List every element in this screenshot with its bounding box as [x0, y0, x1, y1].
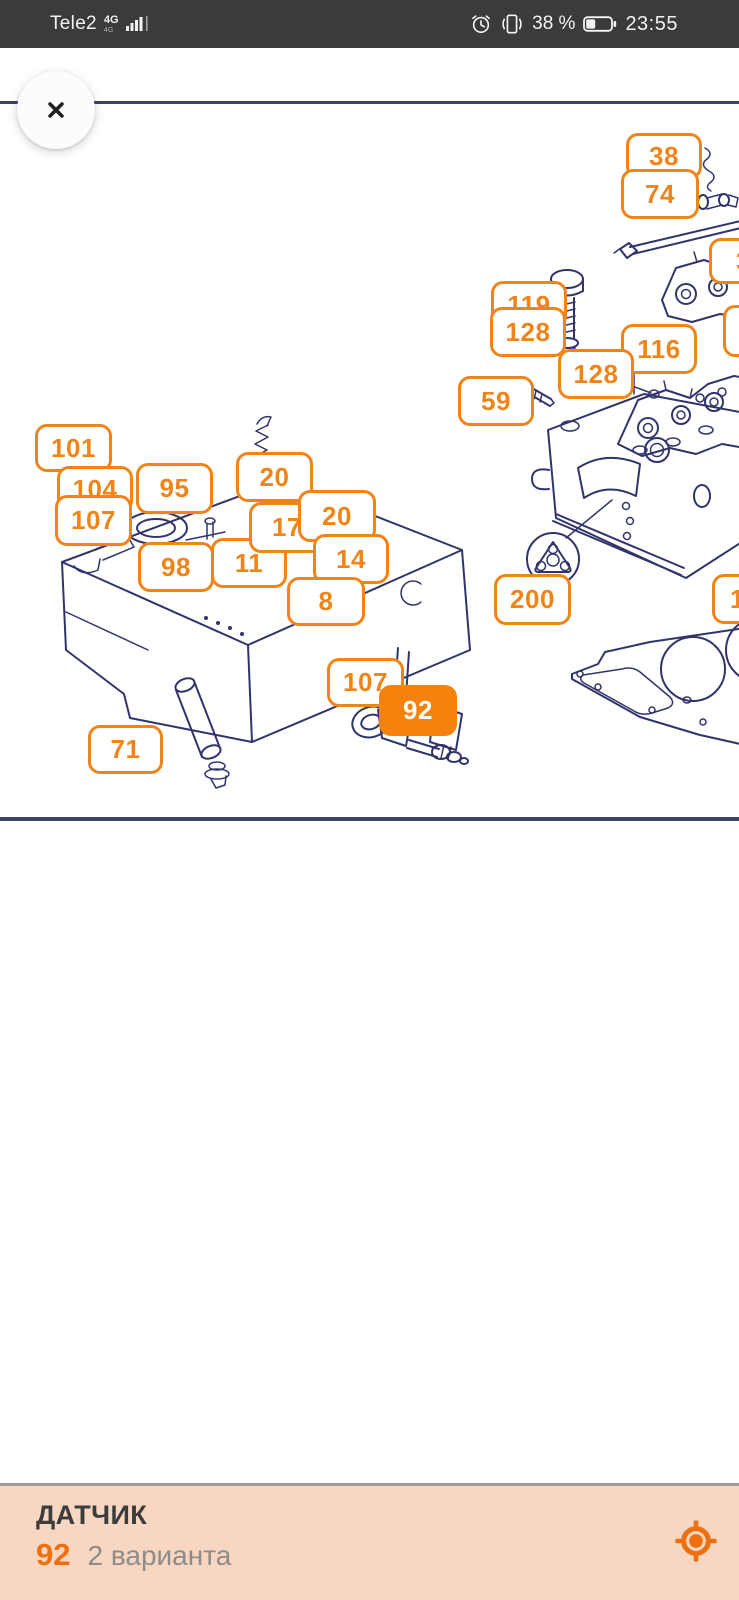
battery-percent: 38 % [532, 13, 575, 35]
part-number: 92 [36, 1537, 70, 1573]
part-label-128[interactable]: 128 [490, 307, 566, 357]
carrier-label: Tele2 [50, 13, 97, 35]
locate-button[interactable] [673, 1518, 719, 1564]
part-label-8[interactable]: 8 [287, 577, 365, 626]
status-bar: Tele2 4G 4G 3 [0, 0, 739, 48]
part-label-71[interactable]: 71 [88, 725, 163, 774]
part-label-200[interactable]: 200 [494, 574, 571, 625]
part-name: ДАТЧИК [36, 1500, 703, 1531]
selected-part-panel[interactable]: ДАТЧИК 92 2 варианта [0, 1483, 739, 1600]
battery-fill [587, 19, 596, 28]
part-label-1[interactable]: 1 [712, 574, 739, 624]
labels-layer: 3874119128116128591011041079520981117201… [0, 0, 739, 1600]
part-variants: 2 варианта [87, 1540, 231, 1572]
close-icon [39, 93, 73, 127]
part-label-59[interactable]: 59 [458, 376, 534, 426]
part-label-unknown[interactable] [723, 305, 739, 357]
parts-catalog-viewer: Tele2 4G 4G 3 [0, 0, 739, 1600]
part-label-92[interactable]: 92 [379, 685, 457, 736]
part-label-107[interactable]: 107 [55, 495, 132, 546]
part-label-128[interactable]: 128 [558, 349, 634, 399]
clock: 23:55 [625, 13, 678, 36]
target-icon [674, 1519, 718, 1563]
part-label-101[interactable]: 101 [35, 424, 112, 472]
part-label-98[interactable]: 98 [138, 542, 214, 592]
battery-icon [583, 16, 617, 32]
part-label-95[interactable]: 95 [136, 463, 213, 514]
close-button[interactable] [17, 71, 95, 149]
signal-strength-icon [126, 15, 150, 33]
part-label-74[interactable]: 74 [621, 169, 699, 219]
vibrate-icon [500, 13, 524, 35]
network-type-indicator: 4G 4G [104, 15, 119, 34]
alarm-icon [470, 13, 492, 35]
part-label-3[interactable]: 3 [709, 238, 739, 284]
